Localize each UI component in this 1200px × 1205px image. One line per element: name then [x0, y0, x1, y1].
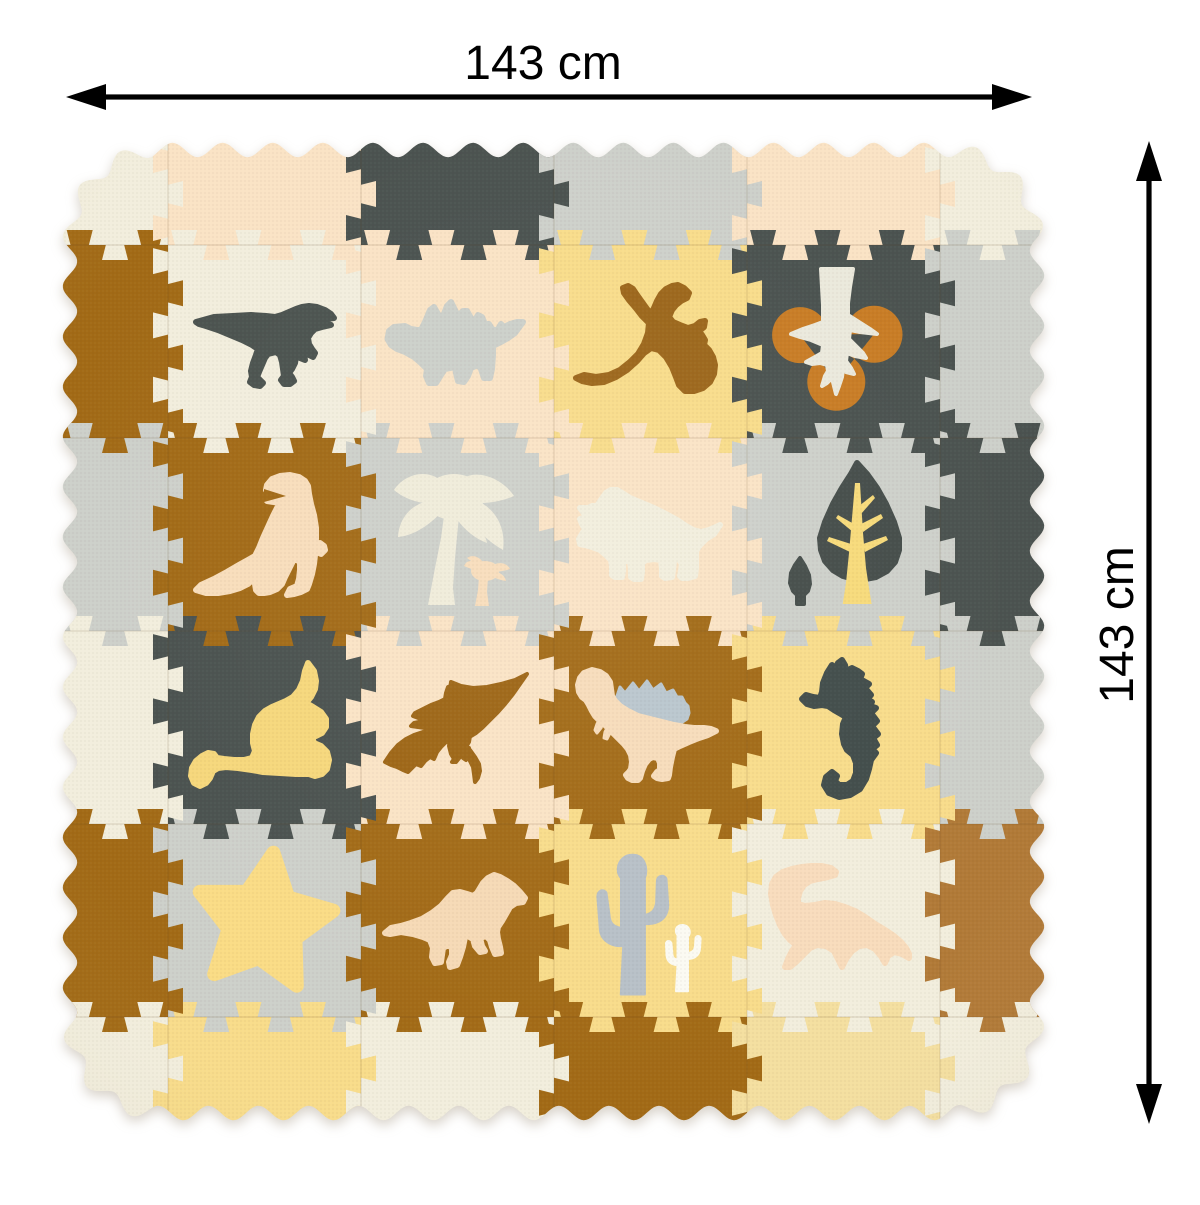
- svg-text:143 cm: 143 cm: [464, 37, 621, 90]
- svg-text:143 cm: 143 cm: [1091, 546, 1144, 703]
